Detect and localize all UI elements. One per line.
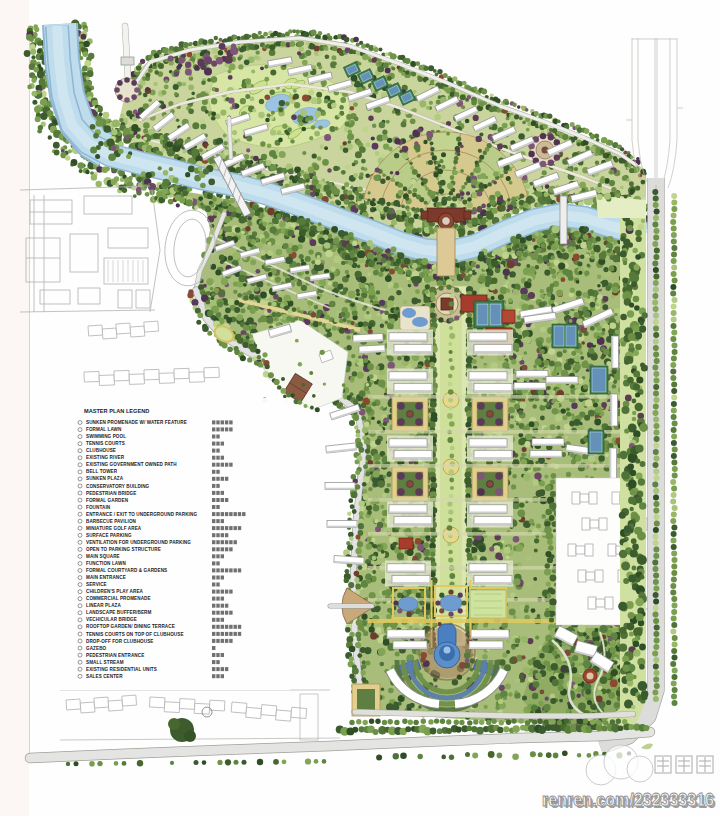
svg-text:FUNCTION LAWN: FUNCTION LAWN	[86, 561, 126, 566]
svg-text:LANDSCAPE BUFFER/BERM: LANDSCAPE BUFFER/BERM	[86, 610, 151, 615]
svg-text:SURFACE PARKING: SURFACE PARKING	[86, 533, 132, 538]
svg-text:DROP-OFF FOR CLUBHOUSE: DROP-OFF FOR CLUBHOUSE	[86, 639, 154, 644]
svg-text:SMALL STREAM: SMALL STREAM	[86, 660, 124, 665]
svg-text:SUNKEN PLAZA: SUNKEN PLAZA	[86, 476, 124, 481]
svg-text:PEDESTRIAN BRIDGE: PEDESTRIAN BRIDGE	[86, 491, 136, 496]
svg-text:SALES CENTER: SALES CENTER	[86, 674, 123, 679]
svg-text:FORMAL GARDEN: FORMAL GARDEN	[86, 498, 129, 503]
svg-text:CHILDREN'S PLAY AREA: CHILDREN'S PLAY AREA	[86, 589, 144, 594]
svg-text:FORMAL LAWN: FORMAL LAWN	[86, 427, 122, 432]
svg-text:EXISTING RIVER: EXISTING RIVER	[86, 455, 125, 460]
svg-text:MAIN SQUARE: MAIN SQUARE	[86, 554, 120, 559]
svg-text:FOUNTAIN: FOUNTAIN	[86, 505, 111, 510]
svg-text:VENTILATION FOR UNDERGROUND PA: VENTILATION FOR UNDERGROUND PARKING	[86, 540, 191, 545]
svg-text:PEDESTRIAN ENTRANCE: PEDESTRIAN ENTRANCE	[86, 653, 144, 658]
svg-text:VECHICULAR BRIDGE: VECHICULAR BRIDGE	[86, 617, 137, 622]
svg-text:SERVICE: SERVICE	[86, 582, 107, 587]
svg-text:FORMAL COURTYARD & GARDENS: FORMAL COURTYARD & GARDENS	[86, 568, 167, 573]
svg-text:COMMERCIAL PROMENADE: COMMERCIAL PROMENADE	[86, 596, 151, 601]
svg-text:CLUBHOUSE: CLUBHOUSE	[86, 448, 116, 453]
svg-text:MINIATURE GOLF AREA: MINIATURE GOLF AREA	[86, 526, 142, 531]
svg-text:TENNIS COURTS: TENNIS COURTS	[86, 441, 125, 446]
svg-text:ROOFTOP GARDEN/ DINING TERRACE: ROOFTOP GARDEN/ DINING TERRACE	[86, 624, 175, 629]
svg-text:BARBECUE PAVILION: BARBECUE PAVILION	[86, 519, 137, 524]
svg-text:renren.com/232333316: renren.com/232333316	[542, 790, 714, 810]
svg-text:BELL TOWER: BELL TOWER	[86, 469, 118, 474]
svg-text:GAZEBO: GAZEBO	[86, 646, 107, 651]
svg-text:SWIMMING POOL: SWIMMING POOL	[86, 434, 126, 439]
svg-text:EXISTING RESIDENTIAL UNITS: EXISTING RESIDENTIAL UNITS	[86, 667, 157, 672]
svg-text:EXISTING GOVERNMENT OWNED PATH: EXISTING GOVERNMENT OWNED PATH	[86, 462, 177, 467]
svg-text:TENNIS COURTS ON TOP OF CLUBHO: TENNIS COURTS ON TOP OF CLUBHOUSE	[86, 632, 184, 637]
svg-text:CONSERVATORY BUILDING: CONSERVATORY BUILDING	[86, 484, 150, 489]
svg-text:LINEAR PLAZA: LINEAR PLAZA	[86, 603, 121, 608]
svg-text:ENTRANCE / EXIT TO UNDERGROUND: ENTRANCE / EXIT TO UNDERGROUND PARKING	[86, 512, 197, 517]
svg-text:MASTER PLAN LEGEND: MASTER PLAN LEGEND	[84, 408, 149, 414]
svg-text:MAIN ENTRANCE: MAIN ENTRANCE	[86, 575, 126, 580]
svg-text:OPEN TO PARKING STRUCTURE: OPEN TO PARKING STRUCTURE	[86, 547, 161, 552]
svg-text:SUNKEN PROMENADE W/ WATER FEAT: SUNKEN PROMENADE W/ WATER FEATURE	[86, 420, 187, 425]
